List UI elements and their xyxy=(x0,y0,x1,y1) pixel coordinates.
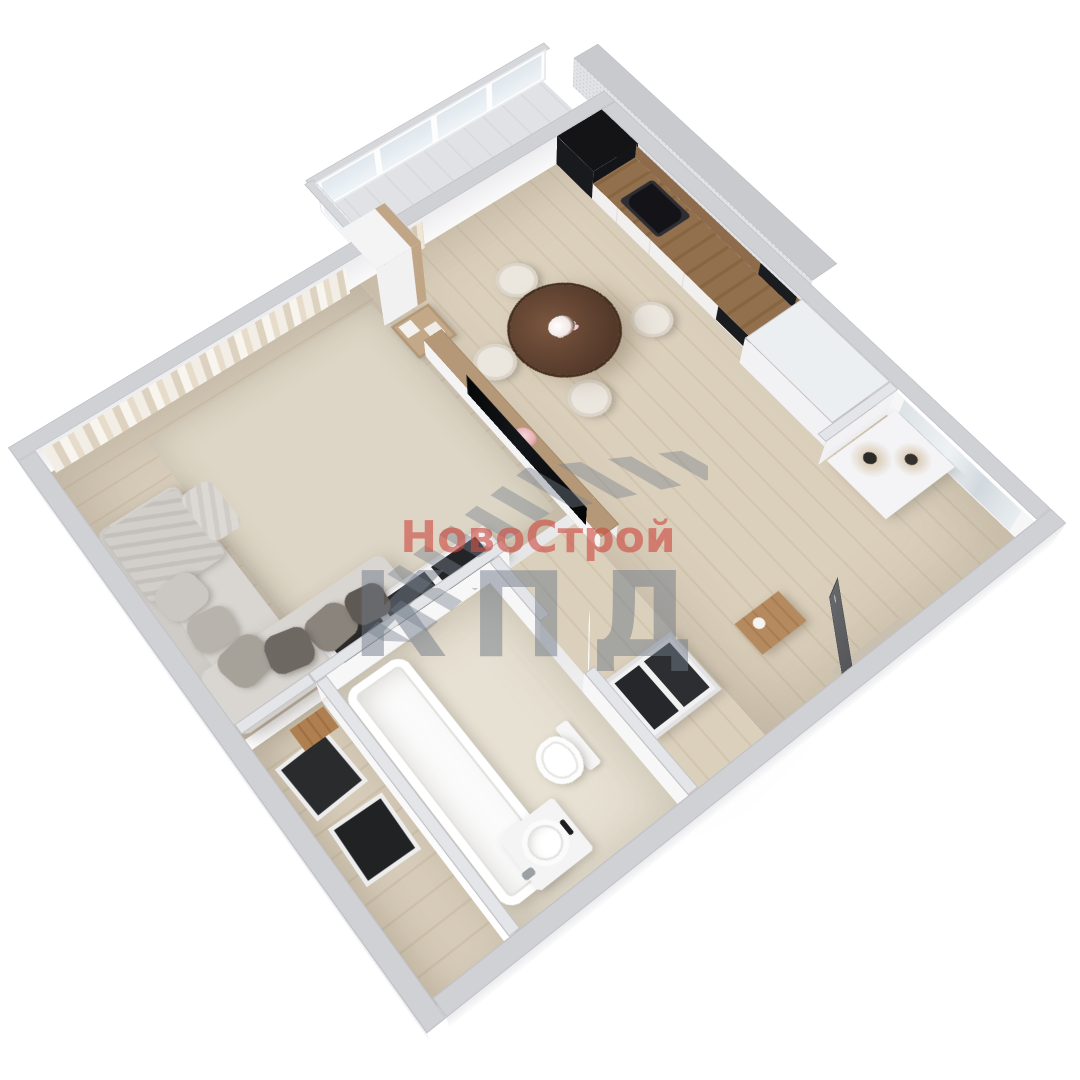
apartment-plan xyxy=(22,119,1052,1043)
floorplan-render: НовоСтрой КПД xyxy=(0,0,1080,1080)
door-handle xyxy=(834,594,836,603)
scene xyxy=(0,0,1080,1080)
